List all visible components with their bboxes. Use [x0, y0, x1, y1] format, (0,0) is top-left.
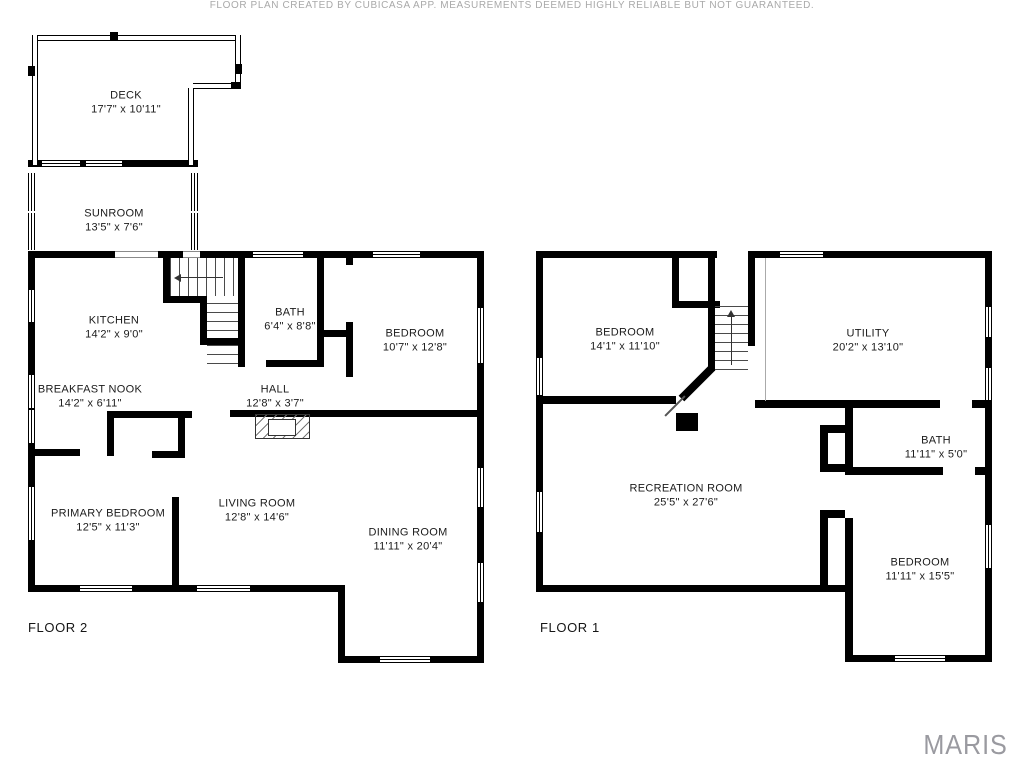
room-dimensions: 11'11" x 20'4" — [368, 540, 447, 554]
wall-segment — [828, 425, 845, 433]
room-label-kitchen: KITCHEN14'2" x 9'0" — [85, 315, 143, 342]
wall-tick — [235, 64, 242, 74]
window — [477, 563, 484, 602]
stair-direction-arrow — [181, 277, 223, 278]
window — [985, 368, 992, 400]
room-dimensions: 10'7" x 12'8" — [383, 341, 447, 355]
window — [536, 358, 543, 395]
disclaimer-text: FLOOR PLAN CREATED BY CUBICASA APP. MEAS… — [0, 0, 1024, 11]
wall-segment — [748, 251, 755, 346]
wall-segment — [820, 425, 828, 472]
chimney-core — [268, 419, 296, 436]
wall-segment — [845, 518, 853, 655]
wall-segment — [536, 251, 717, 258]
room-label-utility: UTILITY20'2" x 13'10" — [833, 328, 904, 355]
window — [477, 308, 484, 363]
room-dimensions: 17'7" x 10'11" — [91, 103, 161, 117]
room-name: HALL — [246, 384, 304, 398]
room-name: DINING ROOM — [368, 527, 447, 541]
room-label-bath-floor1: BATH11'11" x 5'0" — [905, 435, 968, 462]
wall-segment — [346, 251, 353, 265]
room-name: BEDROOM — [383, 328, 447, 342]
wall-segment — [266, 360, 324, 367]
wall-segment — [820, 510, 828, 590]
wall-segment — [317, 251, 324, 367]
room-dimensions: 12'8" x 3'7" — [246, 397, 304, 411]
window — [380, 656, 430, 663]
wall-segment — [975, 467, 985, 475]
wall-segment — [845, 400, 853, 475]
stair-treads — [207, 345, 238, 367]
room-dimensions: 14'2" x 6'11" — [38, 397, 142, 411]
wall-segment — [536, 585, 853, 592]
window — [86, 160, 122, 167]
room-name: BATH — [905, 435, 968, 449]
room-label-deck: DECK17'7" x 10'11" — [91, 90, 161, 117]
stair-direction-arrow — [731, 317, 732, 365]
opening — [115, 251, 158, 258]
wall-segment — [346, 322, 353, 377]
room-dimensions: 20'2" x 13'10" — [833, 341, 904, 355]
window — [536, 492, 543, 532]
room-dimensions: 11'11" x 5'0" — [905, 448, 968, 462]
room-name: LIVING ROOM — [219, 498, 296, 512]
wall-segment — [107, 411, 114, 456]
room-name: BATH — [264, 307, 315, 321]
window — [28, 410, 35, 443]
maris-logo: MARIS — [924, 729, 1008, 761]
deck-rail — [188, 88, 194, 165]
room-dimensions: 13'5" x 7'6" — [84, 221, 144, 235]
ceiling-break-line — [765, 258, 766, 401]
room-label-hall: HALL12'8" x 3'7" — [246, 384, 304, 411]
window — [253, 251, 303, 258]
wall-tick — [110, 32, 118, 40]
room-name: PRIMARY BEDROOM — [51, 508, 165, 522]
room-label-bedroom-floor2: BEDROOM10'7" x 12'8" — [383, 328, 447, 355]
room-dimensions: 14'2" x 9'0" — [85, 328, 143, 342]
wall-segment — [708, 251, 715, 371]
window — [42, 160, 80, 167]
room-dimensions: 11'11" x 15'5" — [885, 570, 954, 584]
wall-segment — [676, 413, 698, 431]
room-label-dining-room: DINING ROOM11'11" x 20'4" — [368, 527, 447, 554]
deck-rail — [32, 35, 38, 165]
room-name: RECREATION ROOM — [629, 483, 742, 497]
wall-segment — [828, 464, 845, 472]
room-dimensions: 12'8" x 14'6" — [219, 511, 296, 525]
wall-segment — [163, 296, 207, 303]
arrowhead — [174, 274, 181, 282]
room-name: DECK — [91, 90, 161, 104]
room-name: KITCHEN — [85, 315, 143, 329]
room-label-recreation-room: RECREATION ROOM25'5" x 27'6" — [629, 483, 742, 510]
floor-1-label: FLOOR 1 — [540, 620, 600, 635]
wall-segment — [172, 497, 179, 592]
window — [28, 290, 35, 322]
window — [895, 655, 945, 662]
window — [191, 173, 198, 211]
room-name: BEDROOM — [885, 557, 954, 571]
room-name: BEDROOM — [590, 327, 660, 341]
room-label-living-room: LIVING ROOM12'8" x 14'6" — [219, 498, 296, 525]
wall-segment — [828, 510, 845, 518]
wall-segment — [28, 585, 345, 592]
window — [28, 487, 35, 540]
room-name: BREAKFAST NOOK — [38, 384, 142, 398]
wall-segment — [536, 251, 543, 592]
stair-treads — [207, 303, 238, 338]
room-label-bedroom-floor1: BEDROOM14'1" x 11'10" — [590, 327, 660, 354]
floor-plan-canvas: DECK17'7" x 10'11"SUNROOM13'5" x 7'6"KIT… — [0, 0, 1024, 768]
window — [28, 213, 35, 250]
window — [985, 525, 992, 568]
window — [373, 251, 420, 258]
window — [28, 173, 35, 211]
arrowhead — [727, 310, 735, 317]
room-label-breakfast-nook: BREAKFAST NOOK14'2" x 6'11" — [38, 384, 142, 411]
floor-2-label: FLOOR 2 — [28, 620, 88, 635]
room-label-bedroom2-floor1: BEDROOM11'11" x 15'5" — [885, 557, 954, 584]
room-label-bath-floor2: BATH6'4" x 8'8" — [264, 307, 315, 334]
deck-rail — [235, 35, 241, 88]
floor-plan-page: DECK17'7" x 10'11"SUNROOM13'5" x 7'6"KIT… — [0, 0, 1024, 768]
window — [80, 585, 132, 592]
wall-segment — [152, 451, 185, 458]
room-label-primary-bedroom: PRIMARY BEDROOM12'5" x 11'3" — [51, 508, 165, 535]
wall-tick — [28, 66, 35, 76]
window — [985, 307, 992, 337]
window — [477, 468, 484, 507]
window — [28, 375, 35, 408]
wall-segment — [238, 251, 245, 367]
room-dimensions: 6'4" x 8'8" — [264, 320, 315, 334]
room-name: SUNROOM — [84, 208, 144, 222]
wall-segment — [543, 396, 676, 404]
opening — [183, 251, 200, 258]
wall-segment — [28, 449, 80, 456]
room-dimensions: 12'5" x 11'3" — [51, 521, 165, 535]
room-name: UTILITY — [833, 328, 904, 342]
wall-tick — [231, 82, 241, 89]
wall-segment — [853, 467, 943, 475]
room-label-sunroom: SUNROOM13'5" x 7'6" — [84, 208, 144, 235]
room-dimensions: 25'5" x 27'6" — [629, 496, 742, 510]
window — [191, 213, 198, 250]
wall-segment — [972, 400, 992, 408]
window — [197, 585, 250, 592]
wall-segment — [338, 585, 345, 663]
room-dimensions: 14'1" x 11'10" — [590, 340, 660, 354]
window — [780, 251, 823, 258]
deck-rail — [32, 35, 240, 41]
